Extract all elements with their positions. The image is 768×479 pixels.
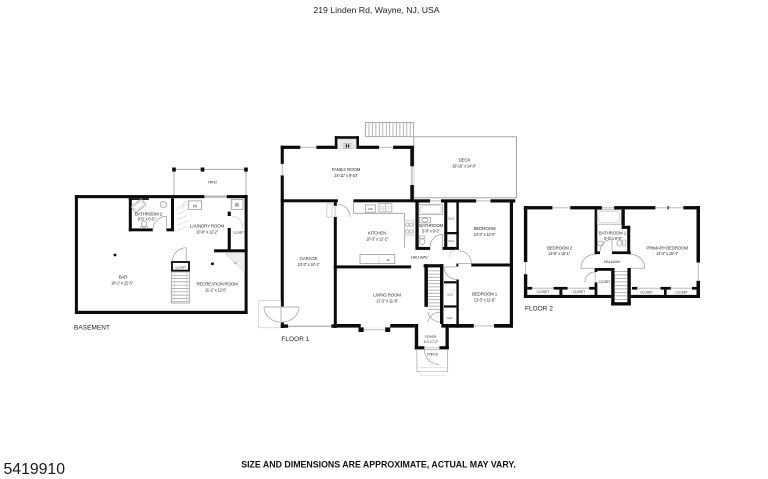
svg-text:6'-2" x 7'-2": 6'-2" x 7'-2": [424, 340, 439, 344]
svg-text:FAMILY ROOM: FAMILY ROOM: [332, 167, 361, 172]
svg-text:CLOSET: CLOSET: [175, 265, 186, 269]
svg-text:PATIO: PATIO: [208, 180, 217, 184]
svg-text:5'-8" x 9'-3": 5'-8" x 9'-3": [422, 228, 441, 233]
svg-text:13'-4" x 15'-4": 13'-4" x 15'-4": [656, 251, 679, 256]
svg-text:CLOSET: CLOSET: [233, 230, 244, 234]
svg-text:LAUNDRY ROOM: LAUNDRY ROOM: [190, 223, 224, 228]
svg-text:SIZE AND DIMENSIONS ARE APPROX: SIZE AND DIMENSIONS ARE APPROXIMATE, ACT…: [241, 460, 516, 470]
svg-text:5419910: 5419910: [4, 461, 66, 478]
svg-text:BI: BI: [387, 258, 390, 262]
svg-text:219 Linden Rd, Wayne, NJ, USA: 219 Linden Rd, Wayne, NJ, USA: [313, 5, 439, 15]
svg-text:FOYER: FOYER: [425, 335, 437, 339]
svg-text:PORCH: PORCH: [427, 352, 439, 356]
svg-text:CLOSET: CLOSET: [537, 290, 549, 294]
svg-text:LIVING ROOM: LIVING ROOM: [373, 292, 401, 297]
svg-text:BEDROOM 1: BEDROOM 1: [472, 292, 498, 297]
svg-text:11'-2" x 12'-5": 11'-2" x 12'-5": [205, 287, 227, 292]
svg-text:BATHROOM 1: BATHROOM 1: [599, 230, 627, 235]
svg-text:13'-8" x 15'-1": 13'-8" x 15'-1": [548, 251, 571, 256]
svg-text:SH: SH: [234, 262, 237, 265]
svg-text:19'-10" x 14'-0": 19'-10" x 14'-0": [452, 163, 477, 168]
svg-text:KITCHEN: KITCHEN: [368, 230, 386, 235]
svg-text:18'-1" x 22'-5": 18'-1" x 22'-5": [111, 280, 134, 285]
svg-text:M: M: [193, 204, 197, 209]
svg-text:CLOSET: CLOSET: [599, 280, 611, 284]
svg-text:CLOSET: CLOSET: [675, 290, 687, 294]
svg-text:HALLWAY: HALLWAY: [604, 259, 621, 264]
svg-text:CLO: CLO: [447, 292, 453, 296]
svg-text:BEDROOM: BEDROOM: [474, 226, 496, 231]
svg-text:CLO: CLO: [448, 239, 454, 243]
svg-text:DW: DW: [368, 207, 373, 211]
svg-text:FLOOR 2: FLOOR 2: [525, 306, 553, 313]
svg-text:CLOSET: CLOSET: [640, 290, 652, 294]
svg-text:10'-3" x 12'-0": 10'-3" x 12'-0": [474, 232, 497, 237]
svg-text:17'-3" x 11'-8": 17'-3" x 11'-8": [376, 298, 398, 303]
svg-text:FLOOR 1: FLOOR 1: [281, 336, 309, 343]
svg-text:6'-0" x 8'-9": 6'-0" x 8'-9": [604, 236, 623, 241]
svg-text:CLO: CLO: [447, 316, 453, 320]
svg-text:CLO: CLO: [448, 217, 454, 221]
svg-text:RECREATION ROOM: RECREATION ROOM: [196, 281, 238, 286]
svg-text:PRIMARY BEDROOM: PRIMARY BEDROOM: [646, 245, 688, 250]
svg-text:BEDROOM 2: BEDROOM 2: [547, 245, 573, 250]
svg-text:BAR: BAR: [119, 274, 129, 279]
svg-text:CLOSET: CLOSET: [573, 290, 585, 294]
svg-text:24'-11" x 9'-10": 24'-11" x 9'-10": [334, 173, 358, 178]
svg-text:10'-8" x 12'-2": 10'-8" x 12'-2": [196, 229, 219, 234]
svg-text:HALLWAY: HALLWAY: [411, 254, 428, 259]
svg-text:8'-5" x 6'-5": 8'-5" x 6'-5": [138, 216, 157, 221]
svg-text:10'-3" x 24'-1": 10'-3" x 24'-1": [298, 262, 321, 267]
svg-text:13'-3" x 11'-8": 13'-3" x 11'-8": [474, 297, 496, 302]
svg-text:DECK: DECK: [459, 157, 471, 162]
svg-text:GARAGE: GARAGE: [300, 256, 318, 261]
svg-text:BATHROOM: BATHROOM: [419, 223, 443, 228]
svg-text:BASEMENT: BASEMENT: [74, 325, 110, 332]
svg-text:10'-3" x 12'-2": 10'-3" x 12'-2": [366, 236, 389, 241]
